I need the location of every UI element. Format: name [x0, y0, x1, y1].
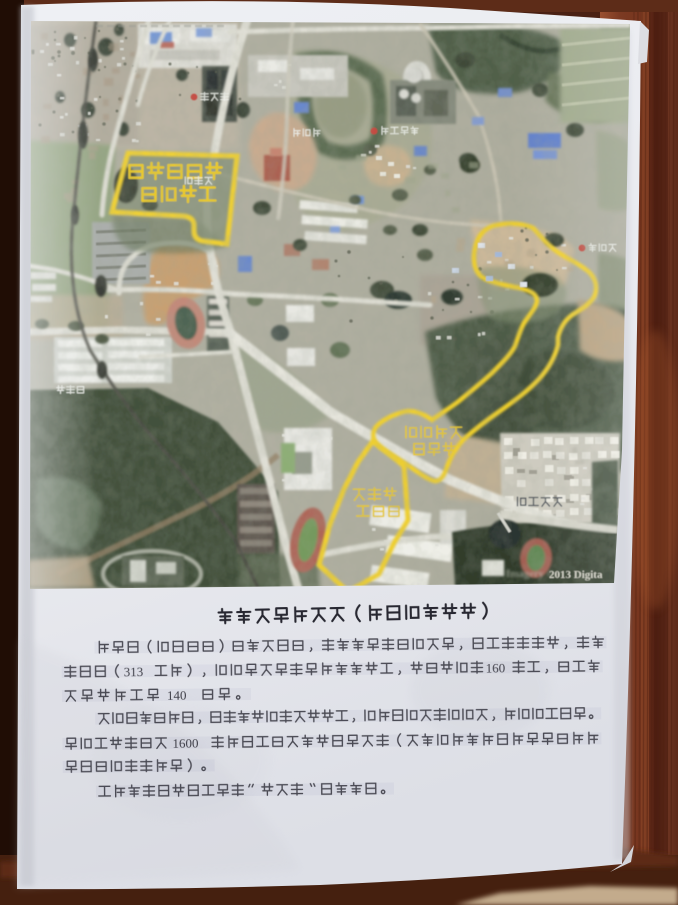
- svg-text:1600: 1600: [172, 736, 198, 751]
- svg-text:140: 140: [167, 688, 187, 703]
- svg-text:160: 160: [486, 660, 506, 675]
- svg-text:313: 313: [124, 664, 144, 679]
